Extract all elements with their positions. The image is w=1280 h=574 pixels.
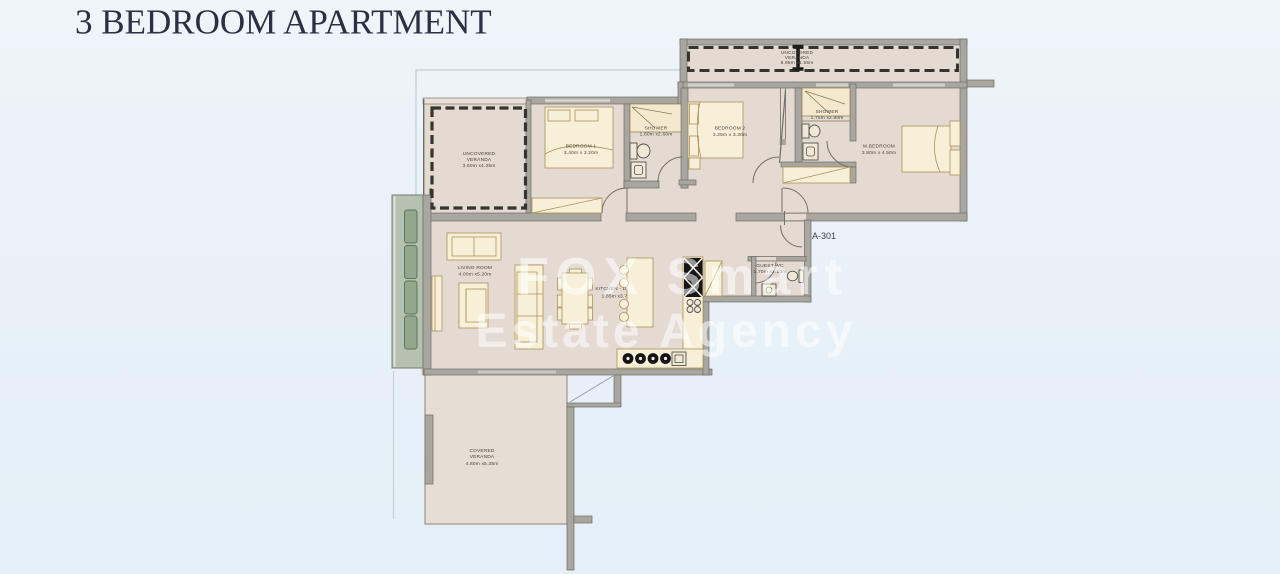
- svg-text:FOX Smart: FOX Smart: [517, 248, 849, 306]
- svg-text:Estate Agency: Estate Agency: [475, 305, 856, 358]
- svg-text:COVEREDVERANDA4.80m x5.35m: COVEREDVERANDA4.80m x5.35m: [466, 448, 499, 467]
- svg-text:UNCOVEREDVERANDA8.95m x1.55m: UNCOVEREDVERANDA8.95m x1.55m: [781, 50, 814, 66]
- svg-text:3 BEDROOM APARTMENT: 3 BEDROOM APARTMENT: [75, 3, 492, 42]
- svg-text:A-301: A-301: [812, 231, 836, 241]
- svg-text:UNCOVEREDVERANDA3.60m x4.35m: UNCOVEREDVERANDA3.60m x4.35m: [463, 151, 496, 169]
